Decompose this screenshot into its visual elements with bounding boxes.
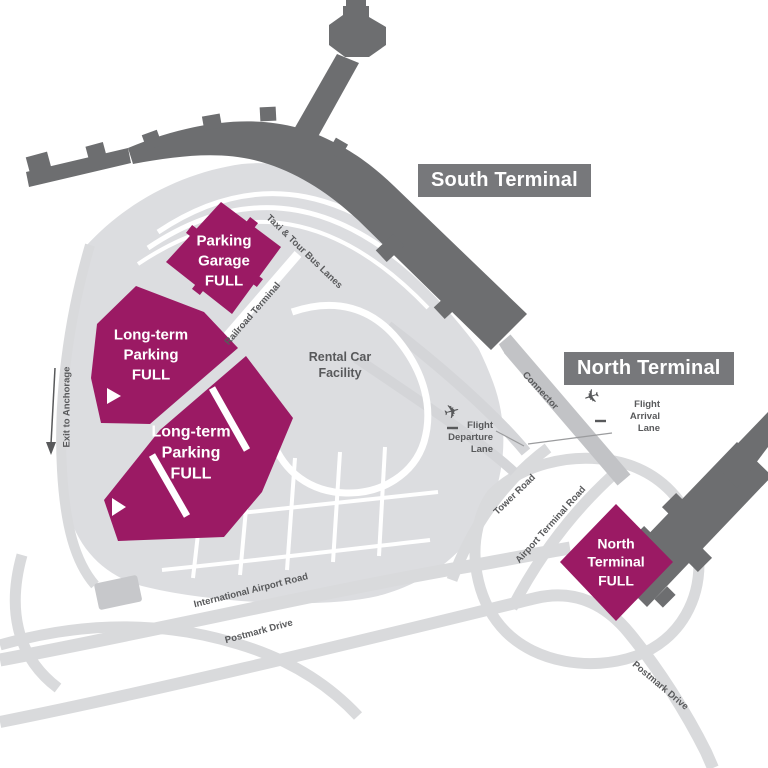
depot-building [94, 575, 143, 611]
airport-parking-map: South Terminal North Terminal Parking Ga… [0, 0, 768, 768]
down-arrow-icon [46, 368, 56, 455]
south-terminal-label: South Terminal [418, 164, 591, 197]
north-terminal-label: North Terminal [564, 352, 734, 385]
